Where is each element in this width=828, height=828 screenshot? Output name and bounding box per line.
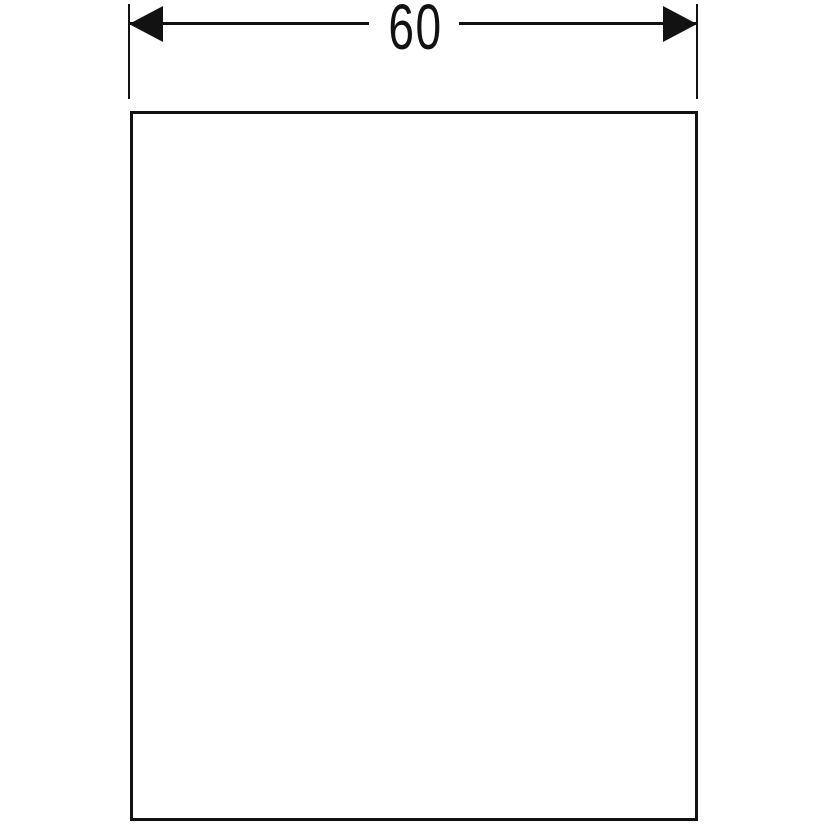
arrowhead-left-icon: [129, 6, 163, 42]
dimension-diagram-canvas: 60: [0, 0, 828, 828]
dimension-label: 60: [382, 0, 449, 57]
arrowhead-right-icon: [663, 6, 697, 42]
product-outline-rectangle: [130, 111, 698, 821]
dimension-line-left-segment: [130, 22, 369, 25]
